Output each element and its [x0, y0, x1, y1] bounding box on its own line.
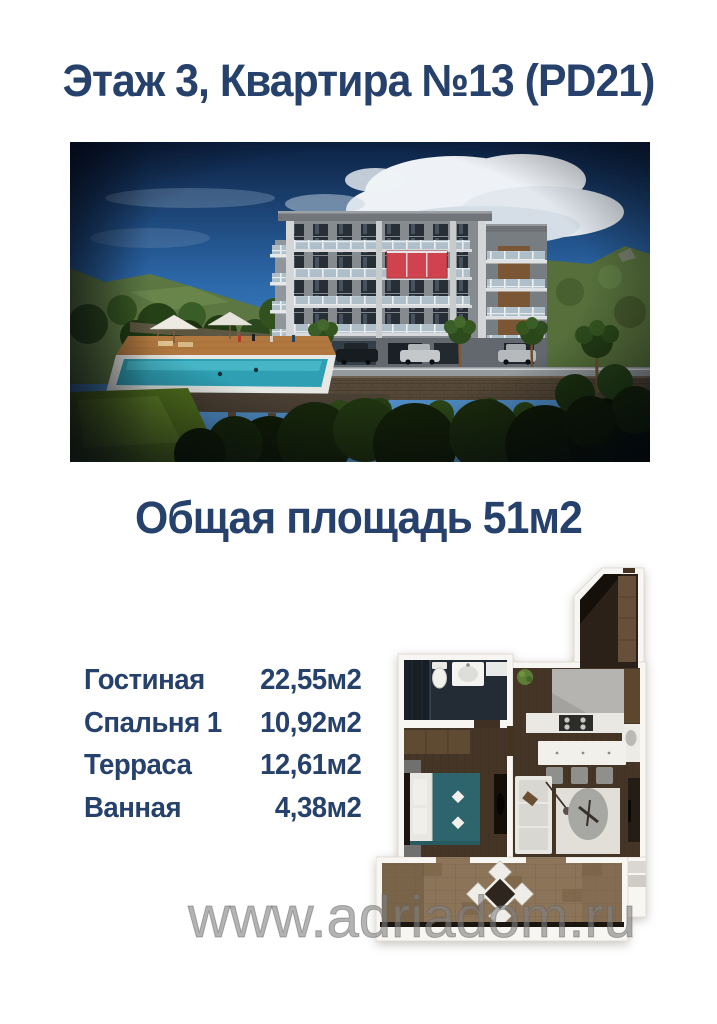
table-row: Ванная 4,38м2 [84, 792, 361, 835]
wardrobe [404, 730, 470, 754]
room-area: 12,61м2 [260, 749, 361, 782]
room-area: 10,92м2 [260, 707, 361, 740]
plan-living-kitchen [513, 668, 640, 857]
total-area-heading: Общая площадь 51м2 [18, 492, 699, 544]
room-name: Спальня 1 [84, 707, 222, 740]
room-name: Терраса [84, 749, 191, 782]
room-area-table: Гостиная 22,55м2 Спальня 1 10,92м2 Терра… [84, 664, 361, 834]
toilet [433, 668, 447, 688]
table-row: Спальня 1 10,92м2 [84, 707, 361, 750]
room-area: 22,55м2 [260, 664, 361, 697]
sofa [515, 776, 552, 854]
plan-bedroom [404, 726, 513, 857]
bed [404, 773, 480, 845]
vignette [70, 142, 650, 462]
flyer-page: Этаж 3, Квартира №13 (PD21) [0, 0, 717, 1024]
table-row: Терраса 12,61м2 [84, 749, 361, 792]
room-name: Ванная [84, 792, 181, 825]
page-title: Этаж 3, Квартира №13 (PD21) [18, 55, 699, 107]
building-render-image [70, 142, 650, 462]
room-area: 4,38м2 [275, 792, 361, 825]
table-row: Гостиная 22,55м2 [84, 664, 361, 707]
room-name: Гостиная [84, 664, 205, 697]
watermark-text: www.adriadom.ru [188, 884, 636, 951]
